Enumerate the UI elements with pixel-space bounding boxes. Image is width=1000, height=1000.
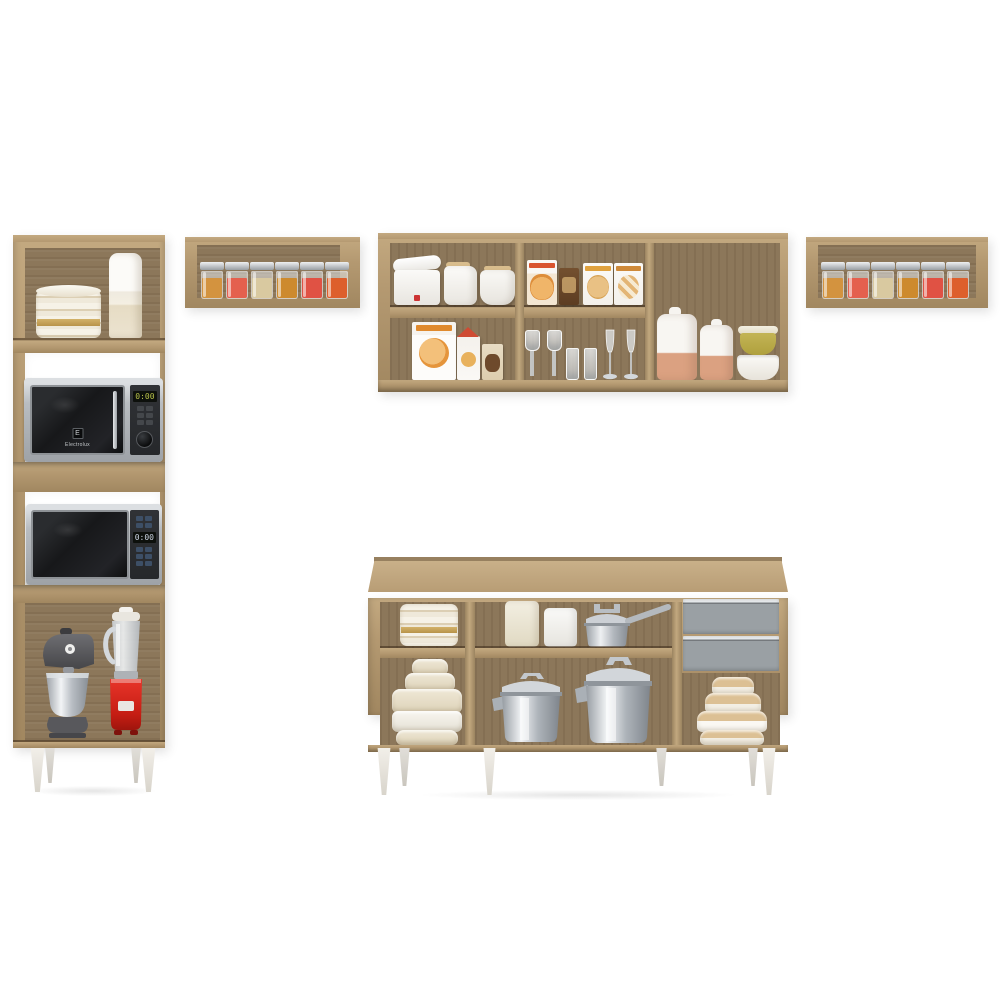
spice-jar <box>251 262 273 299</box>
stem-glass-stem <box>552 351 556 376</box>
jar-contents <box>898 278 918 298</box>
counter-top-surface <box>368 561 788 592</box>
vertical-divider <box>465 602 475 745</box>
kitchen-cabinet-set-photo: E Electrolux 0:00 <box>0 0 1000 1000</box>
spice-jar <box>922 262 944 299</box>
button <box>137 406 144 411</box>
microwave-door <box>31 510 129 578</box>
drawer <box>683 599 779 634</box>
cabinet-top-edge <box>378 233 788 239</box>
jar-glass <box>922 271 944 299</box>
button <box>136 523 143 528</box>
tumbler-glass <box>584 348 597 380</box>
shelf-top-edge <box>806 237 988 242</box>
cookie-box <box>614 263 643 305</box>
button <box>145 516 152 521</box>
shelf-board <box>524 305 645 318</box>
button <box>145 554 152 559</box>
jar-lid <box>225 262 249 270</box>
shelf-top-edge <box>185 237 360 242</box>
jar-contents <box>848 278 868 298</box>
jar-glass <box>276 271 298 299</box>
cookie-box <box>583 263 613 305</box>
spice-jar <box>301 262 323 299</box>
vertical-divider <box>645 243 654 380</box>
stem-glass <box>547 330 562 351</box>
button <box>137 413 144 418</box>
shelf-board <box>380 646 465 658</box>
button <box>136 561 143 566</box>
floor-shadow <box>366 788 790 802</box>
vertical-divider <box>672 602 682 745</box>
milk-carton <box>457 336 480 380</box>
wall-cabinet <box>378 233 788 392</box>
spice-jar <box>872 262 894 299</box>
spice-jar <box>822 262 844 299</box>
jar-glass <box>251 271 273 299</box>
brand-label: Electrolux <box>65 442 90 448</box>
spice-shelf-left <box>185 237 360 308</box>
button-grid <box>133 547 156 566</box>
jar-contents <box>923 278 943 298</box>
spice-jar <box>847 262 869 299</box>
display: 0:00 <box>133 532 156 543</box>
jar-glass <box>847 271 869 299</box>
door-glint <box>47 519 89 541</box>
cabinet-leg <box>398 748 411 786</box>
control-panel: 0:00 <box>130 510 159 578</box>
jar-glass <box>947 271 969 299</box>
cereal-box <box>527 260 557 305</box>
ceramic-canister <box>657 314 697 380</box>
jar-contents <box>327 278 347 298</box>
snack-art <box>485 354 500 372</box>
stock-pot-small <box>490 669 572 745</box>
stand-mixer <box>33 620 99 741</box>
door-glint <box>44 393 85 416</box>
spice-jar <box>326 262 348 299</box>
stem-glass <box>525 330 540 351</box>
spice-jar <box>276 262 298 299</box>
jar-lid <box>250 262 274 270</box>
button <box>145 561 152 566</box>
microwave-top: E Electrolux 0:00 <box>24 378 163 462</box>
floor-shadow <box>8 784 178 798</box>
milk-jug <box>444 266 477 305</box>
counter-cabinet <box>368 557 788 752</box>
jar-contents <box>202 278 222 298</box>
carton-art <box>461 352 476 367</box>
jar-lid <box>300 262 324 270</box>
stock-pot-large <box>574 653 662 747</box>
cabinet-leg <box>44 748 56 783</box>
jar-lid <box>200 262 224 270</box>
jar-lid <box>275 262 299 270</box>
shelf-board <box>13 338 165 353</box>
tumbler-glass <box>566 348 579 380</box>
stacked-plates <box>36 290 101 338</box>
champagne-flute <box>600 329 620 380</box>
bottom-board <box>13 740 165 748</box>
door-handle <box>113 391 117 450</box>
jar-lid <box>896 262 920 270</box>
pizza-box <box>412 322 456 380</box>
button <box>137 420 144 425</box>
box-title-band <box>416 325 452 331</box>
jar-glass <box>326 271 348 299</box>
cocoa-box <box>559 268 579 305</box>
lidded-canister <box>480 270 515 305</box>
middle-panel <box>13 585 165 603</box>
cocoa-label <box>562 277 576 293</box>
snack-box <box>482 344 503 380</box>
jar-contents <box>227 278 247 298</box>
pizza-art <box>419 338 449 368</box>
jar-glass <box>822 271 844 299</box>
wood-lid-bowl <box>705 693 761 713</box>
microwave-bottom: 0:00 <box>26 504 162 585</box>
cookie-art <box>618 275 639 299</box>
carton-gable <box>457 327 479 337</box>
button <box>146 406 153 411</box>
spice-jar <box>226 262 248 299</box>
plate-gold-band <box>401 627 457 633</box>
spice-shelf-right <box>806 237 988 308</box>
storage-canister <box>109 253 142 338</box>
scale-badge <box>414 295 420 301</box>
button <box>136 516 143 521</box>
knob <box>136 431 153 448</box>
plate-rim <box>36 285 101 297</box>
jar-glass <box>301 271 323 299</box>
button-grid <box>133 516 156 528</box>
jar-lid <box>946 262 970 270</box>
olive-bowl <box>740 333 776 355</box>
jar-contents <box>302 278 322 298</box>
wood-lid-bowl <box>697 711 767 732</box>
cabinet-leg <box>130 748 142 783</box>
jar-contents <box>948 278 968 298</box>
jar-contents <box>252 278 272 298</box>
spice-jar <box>201 262 223 299</box>
button <box>145 547 152 552</box>
tall-cabinet: E Electrolux 0:00 <box>13 235 165 748</box>
saucepan <box>580 601 674 648</box>
cabinet-leg <box>655 748 668 786</box>
stacked-plates <box>400 604 458 646</box>
box-title-band <box>616 266 641 271</box>
box-title-band <box>529 263 555 268</box>
middle-panel <box>13 462 165 492</box>
jar-contents <box>823 278 843 298</box>
jar-lid <box>325 262 349 270</box>
wood-lid-bowl <box>700 730 764 745</box>
jar-glass <box>201 271 223 299</box>
jar-lid <box>871 262 895 270</box>
control-panel: 0:00 <box>130 385 159 456</box>
cookie-art <box>587 275 609 299</box>
cereal-art <box>530 274 554 300</box>
white-bowl <box>737 355 779 380</box>
ivory-canister <box>505 601 539 647</box>
cabinet-bottom-board <box>378 380 788 392</box>
jar-lid <box>821 262 845 270</box>
spice-jar <box>897 262 919 299</box>
bowl-tier <box>392 711 462 732</box>
champagne-flute <box>621 329 641 380</box>
jar-lid <box>921 262 945 270</box>
shelf-board <box>390 305 515 318</box>
vertical-divider <box>515 243 524 380</box>
jar-glass <box>897 271 919 299</box>
jar-contents <box>277 278 297 298</box>
stem-glass-stem <box>530 351 534 376</box>
electrolux-logo-icon: E <box>72 428 83 439</box>
drawer <box>683 636 779 671</box>
jar-lid <box>846 262 870 270</box>
cabinet-leg <box>747 748 759 786</box>
cabinet-top-edge <box>13 235 165 242</box>
button <box>136 554 143 559</box>
bowl-tier <box>396 730 458 745</box>
button-grid <box>133 406 156 425</box>
display: 0:00 <box>133 391 156 402</box>
plate-gold-band <box>37 319 100 326</box>
counter-bottom-board <box>368 745 788 752</box>
white-canister <box>544 608 577 647</box>
box-title-band <box>585 266 611 271</box>
button <box>136 547 143 552</box>
ceramic-canister <box>700 325 733 380</box>
spice-jar <box>947 262 969 299</box>
microwave-door: E Electrolux <box>30 385 126 456</box>
jar-contents <box>873 278 893 298</box>
button <box>145 523 152 528</box>
button <box>146 413 153 418</box>
button <box>146 420 153 425</box>
blender <box>99 607 153 741</box>
jar-glass <box>226 271 248 299</box>
bowl-tier <box>392 689 462 713</box>
jar-glass <box>872 271 894 299</box>
